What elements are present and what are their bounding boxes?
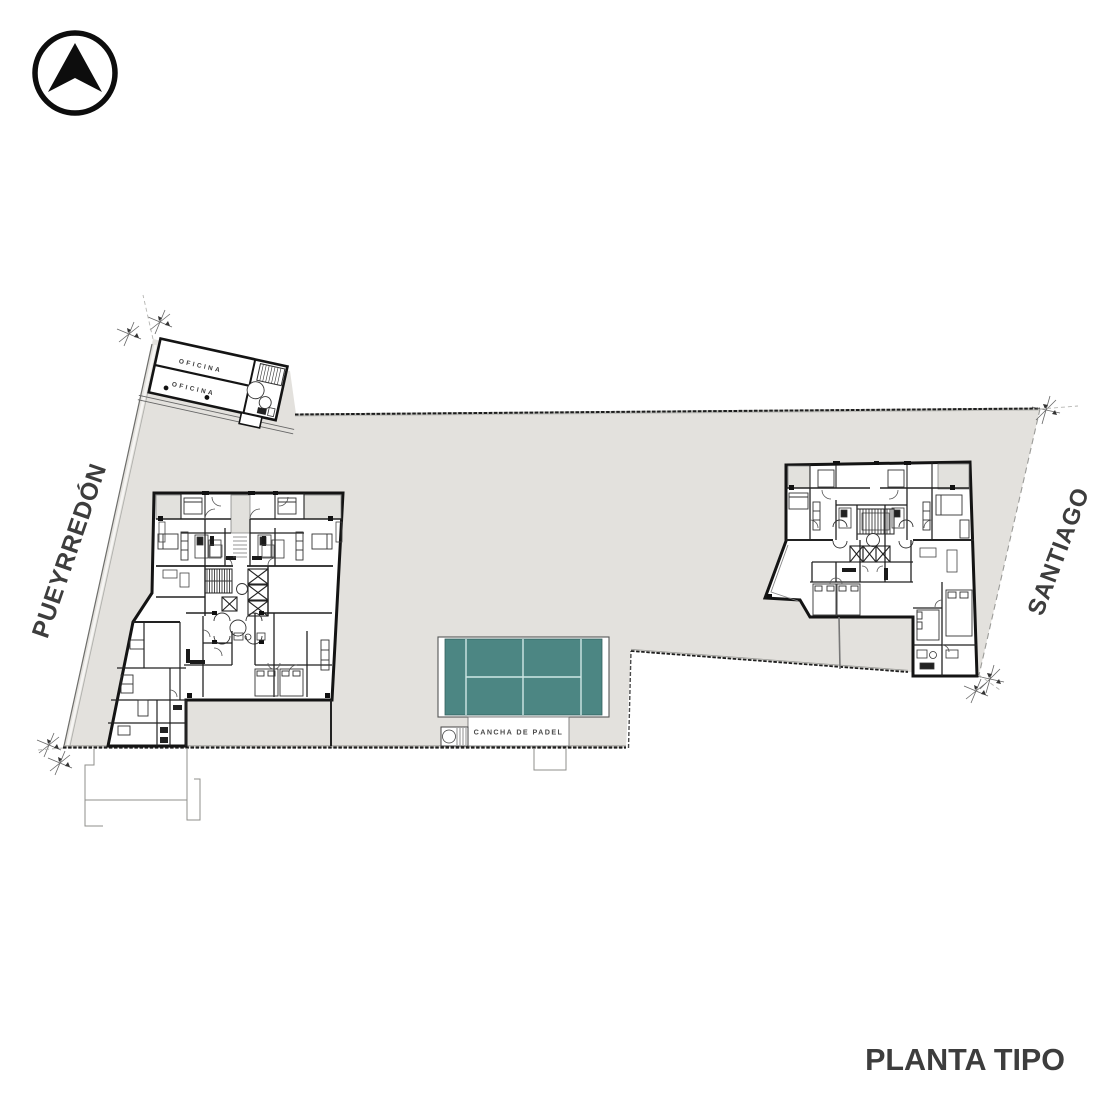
svg-text:SANTIAGO: SANTIAGO	[1023, 484, 1096, 620]
svg-text:PLANTA TIPO: PLANTA TIPO	[865, 1043, 1065, 1077]
svg-text:CANCHA DE PADEL: CANCHA DE PADEL	[474, 728, 564, 737]
